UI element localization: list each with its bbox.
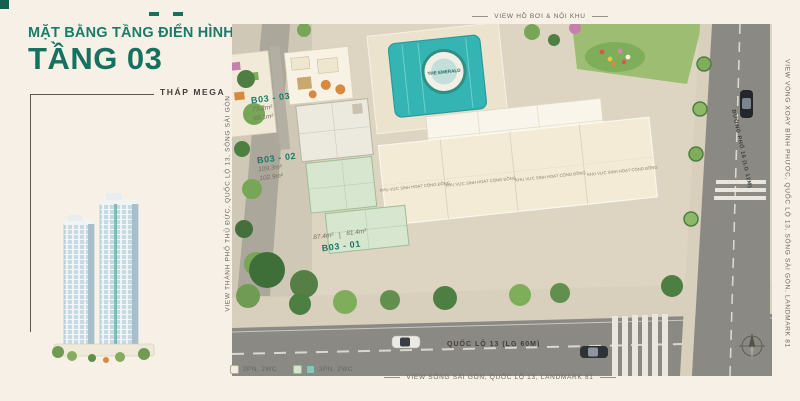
view-caption-top: VIEW HỒ BƠI & NỘI KHU xyxy=(440,13,640,20)
legend-swatch-2pn-icon xyxy=(230,365,239,374)
view-caption-bottom: VIEW SÔNG SÀI GÒN, QUỐC LỘ 13, LANDMARK … xyxy=(370,374,630,381)
car-white xyxy=(392,336,420,348)
divider xyxy=(339,232,341,239)
unit-label-b03-02: B03 - 02 109.3m² 102.9m² xyxy=(256,150,299,184)
caption-arrow-icon xyxy=(592,16,608,17)
tower-rendering xyxy=(48,190,168,370)
tower-podium xyxy=(52,344,154,363)
logo-dash-icon xyxy=(173,12,183,16)
view-caption-left: VIEW THÀNH PHỐ THỦ ĐỨC, QUỐC LỘ 13, SÔNG… xyxy=(225,109,232,299)
tower-callout-line xyxy=(30,94,154,95)
corner-mark xyxy=(0,0,9,9)
crosswalk-street xyxy=(714,180,766,200)
car-street xyxy=(740,90,753,118)
legend-swatch-3pn-teal-icon xyxy=(306,365,315,374)
legend-item-3pn: 3PN, 2WC xyxy=(293,365,353,374)
caption-text: VIEW THÀNH PHỐ THỦ ĐỨC, QUỐC LỘ 13, SÔNG… xyxy=(225,95,232,311)
logo-dash-icon xyxy=(149,12,159,16)
unit-block-b03-02 xyxy=(306,156,377,213)
unit-label-b03-03: B03 - 03 73.2m² 69.1m² xyxy=(250,90,293,124)
logo-dashes xyxy=(149,12,183,16)
legend-swatch-3pn-light-icon xyxy=(293,365,302,374)
caption-arrow-icon xyxy=(472,16,488,17)
tower-right xyxy=(100,193,138,346)
view-caption-right: VIEW VÒNG XOAY BÌNH PHƯỚC, QUỐC LỘ 13, S… xyxy=(784,81,791,327)
floor-title: TẦNG 03 xyxy=(28,41,162,77)
unit-block-b03-03 xyxy=(296,99,373,162)
caption-arrow-icon xyxy=(600,377,616,378)
legend-item-2pn: 2PN, 2WC xyxy=(230,365,277,374)
car-dark xyxy=(580,346,608,358)
legend-label: 3PN, 2WC xyxy=(319,366,353,373)
amenity-terrace xyxy=(284,46,353,104)
tower-name-label: THÁP MEGA xyxy=(160,87,225,97)
page-title: MẶT BẰNG TẦNG ĐIỂN HÌNH xyxy=(28,25,234,41)
caption-text: VIEW VÒNG XOAY BÌNH PHƯỚC, QUỐC LỘ 13, S… xyxy=(784,59,791,348)
caption-text: VIEW SÔNG SÀI GÒN, QUỐC LỘ 13, LANDMARK … xyxy=(406,374,593,381)
caption-arrow-icon xyxy=(384,377,400,378)
legend: 2PN, 2WC 3PN, 2WC xyxy=(230,365,353,374)
brochure-page: MẶT BẰNG TẦNG ĐIỂN HÌNH TẦNG 03 THÁP MEG… xyxy=(0,0,800,401)
tower-left xyxy=(64,215,94,346)
legend-label: 2PN, 2WC xyxy=(243,366,277,373)
caption-text: VIEW HỒ BƠI & NỘI KHU xyxy=(494,13,585,20)
tower-callout-line-vertical xyxy=(30,94,31,332)
site-plan-map: THE EMERALD KHU VỰC SINH HOẠT CỘNG ĐỒNG … xyxy=(232,24,772,376)
